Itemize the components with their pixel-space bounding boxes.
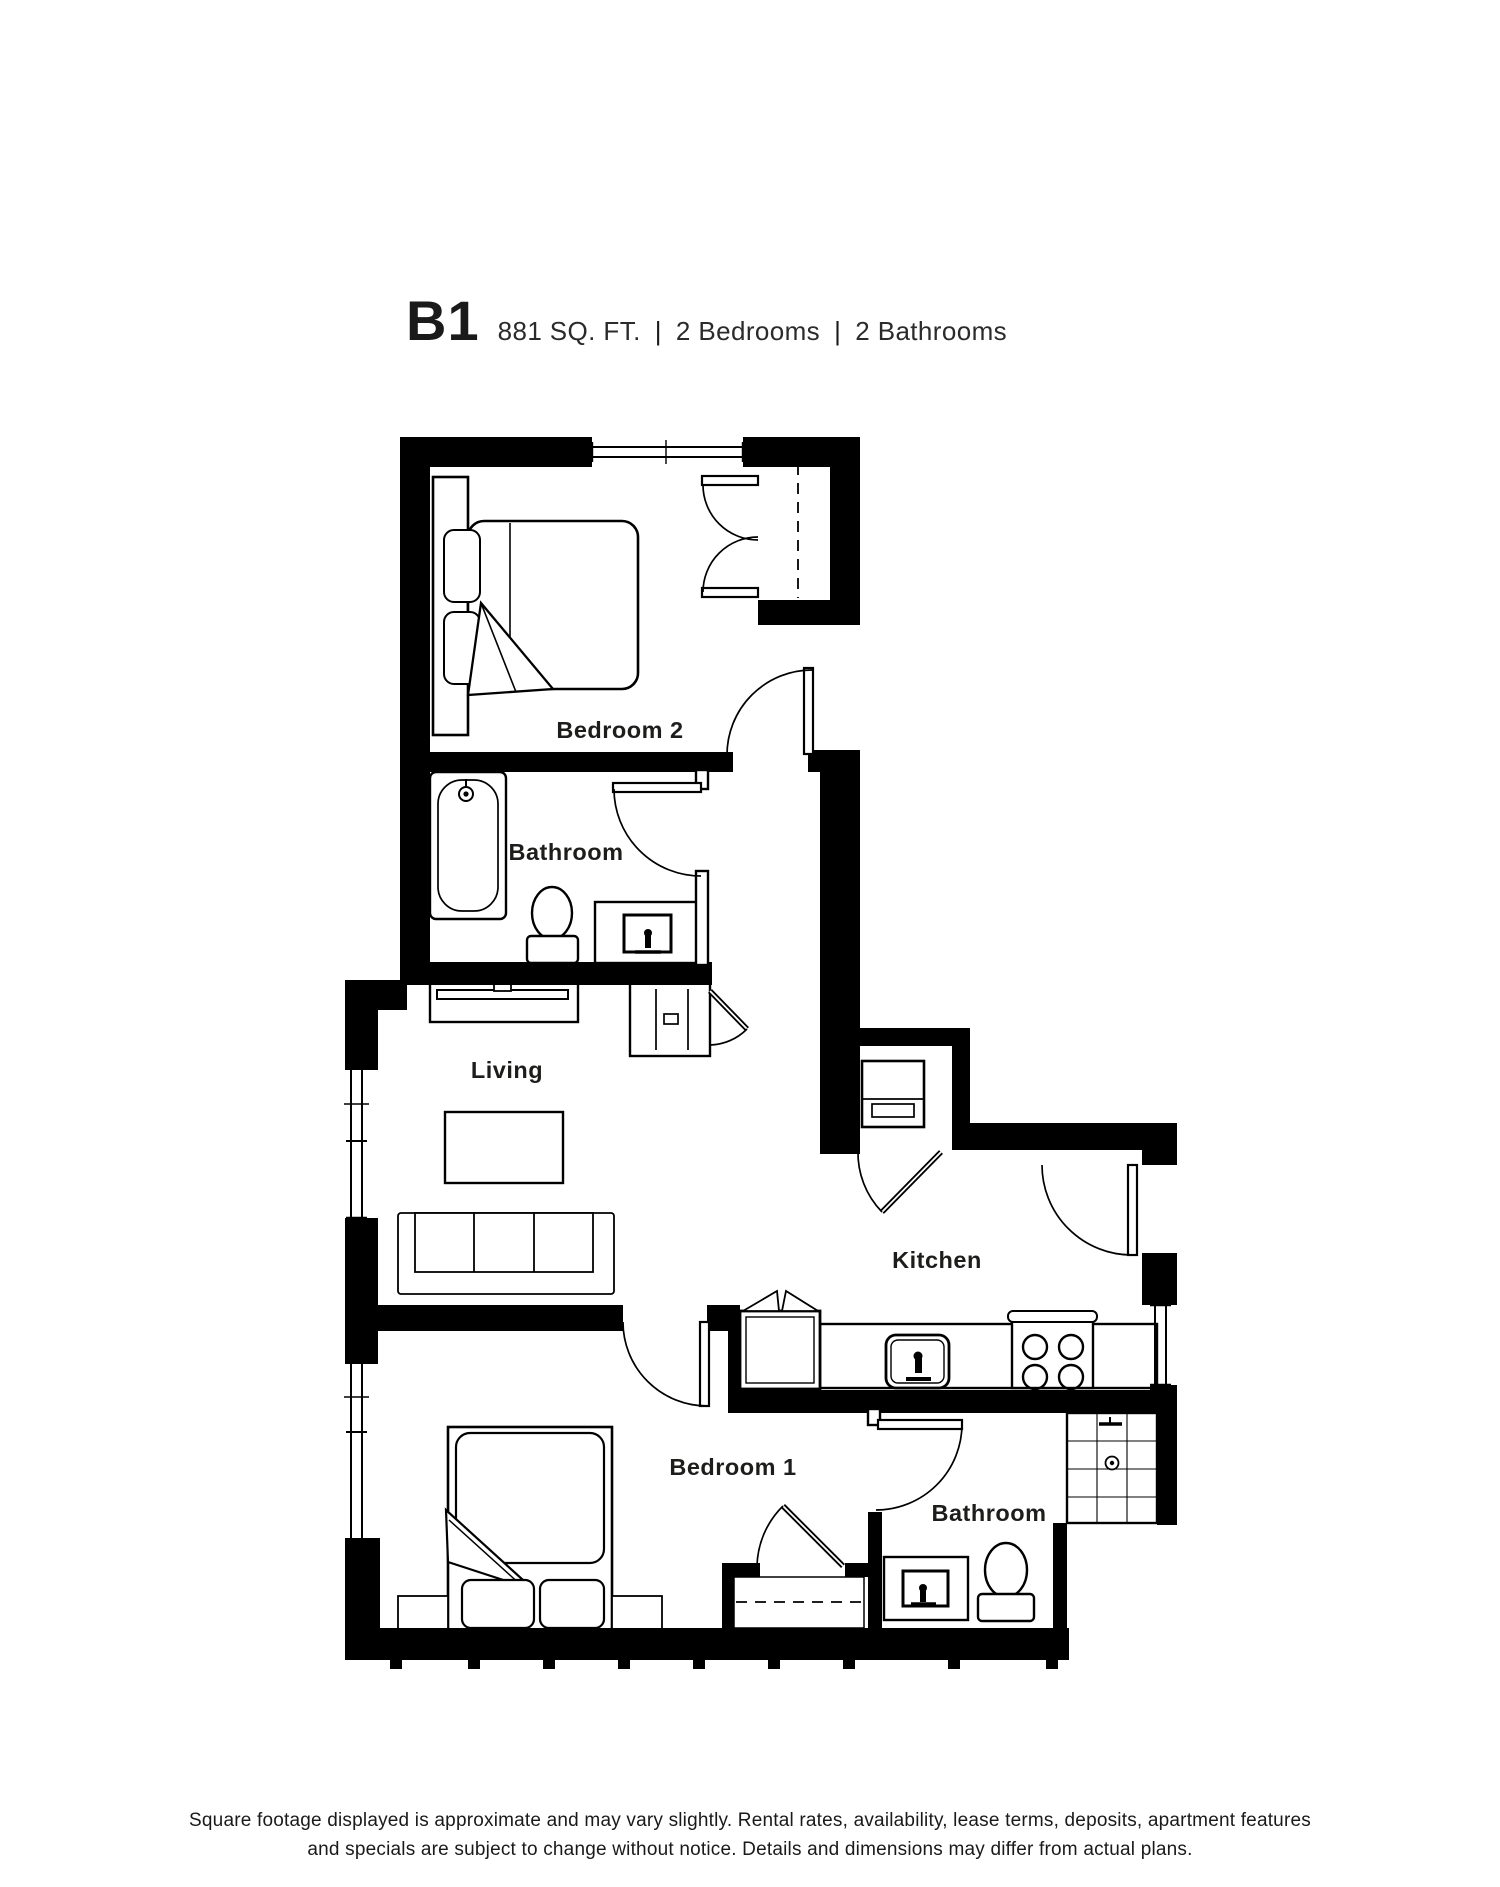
bed1-pillow-right (540, 1580, 604, 1628)
wall-entry-stub-bottom (1142, 1253, 1177, 1305)
bed2-headboard (433, 477, 468, 735)
wall-washer-top (820, 1028, 970, 1046)
foundation-tick-4 (618, 1660, 630, 1669)
door-bedroom2-arc (727, 670, 812, 755)
door-bath2-arc (614, 789, 701, 876)
coffee-table (445, 1112, 563, 1183)
foundation-tick-2 (468, 1660, 480, 1669)
label-living: Living (471, 1057, 543, 1083)
door-washer-arc (858, 1150, 882, 1212)
label-bathroom-2: Bathroom (509, 839, 624, 865)
sink1-faucet-stem (920, 1588, 926, 1602)
pantry-bifold-left (743, 1291, 779, 1311)
door-hvac-arc (710, 1029, 747, 1045)
disclaimer-line-2: and specials are subject to change witho… (0, 1835, 1500, 1864)
wall-bed1-door-stub (707, 1305, 730, 1331)
door-closet1-arc (757, 1506, 783, 1566)
tub-shower-valve-dot (463, 791, 468, 796)
door-washer-leaf-inner (882, 1152, 941, 1212)
foundation-tick-6 (768, 1660, 780, 1669)
wall-kitchen-right-low (1150, 1385, 1177, 1413)
door-closet1-leaf-inner (783, 1506, 843, 1566)
door-bath2-leaf (613, 783, 701, 792)
toilet1-bowl (985, 1543, 1027, 1597)
toilet2-tank (527, 936, 578, 963)
kitchen-faucet-stem (915, 1356, 922, 1373)
shower-drain-dot (1110, 1461, 1114, 1465)
door-closet2-leaf-bottom (702, 588, 758, 597)
thinwall-bath2-right-bottom (696, 871, 708, 965)
wall-bath1-left (868, 1512, 882, 1633)
wall-washer-right (952, 1028, 970, 1150)
wall-step (1053, 1523, 1067, 1633)
wall-bedroom2-bottom (400, 752, 733, 772)
sink2-faucet-stem (645, 933, 651, 948)
door-bed1-arc (623, 1322, 707, 1406)
door-closet2-arc-bottom (703, 537, 758, 592)
door-closet2-leaf-top (702, 476, 758, 485)
floorplan-svg: Bedroom 2BathroomLivingKitchenBedroom 1B… (0, 0, 1500, 1887)
label-bedroom-1: Bedroom 1 (669, 1454, 796, 1480)
floorplan-page: B1 881 SQ. FT.|2 Bedrooms|2 Bathrooms Be… (0, 0, 1500, 1887)
wall-bath2-bottom (400, 962, 712, 985)
wall-bottom (345, 1628, 1069, 1660)
door-bath1-leaf (878, 1420, 962, 1429)
foundation-tick-1 (390, 1660, 402, 1669)
foundation-tick-8 (948, 1660, 960, 1669)
foundation-tick-3 (543, 1660, 555, 1669)
wall-living-left-b (345, 1218, 378, 1364)
door-bath1-arc (876, 1424, 962, 1510)
door-hvac-leaf-inner (710, 991, 747, 1029)
pantry-bifold-right (782, 1291, 818, 1311)
wall-kitchen-top (952, 1123, 1177, 1150)
wall-hall-right (820, 750, 860, 1154)
wall-left-upper (400, 437, 430, 982)
sofa-cushions (415, 1213, 593, 1272)
foundation-tick-5 (693, 1660, 705, 1669)
wall-closet2-bottom (758, 600, 860, 625)
washer-drawer (872, 1104, 914, 1117)
door-bed1-leaf (700, 1322, 709, 1406)
pantry-cabinet (740, 1311, 820, 1389)
wall-under-pantry (728, 1390, 1160, 1413)
stove-back-panel (1008, 1311, 1097, 1322)
wall-bath1-right (1157, 1411, 1177, 1525)
bed2-pillow-top (444, 530, 480, 602)
foundation-tick-7 (843, 1660, 855, 1669)
wall-living-left-a (345, 980, 378, 1070)
wall-closet1-left (722, 1563, 734, 1640)
toilet2-bowl (532, 887, 572, 939)
disclaimer: Square footage displayed is approximate … (0, 1806, 1500, 1864)
door-entry-arc (1042, 1165, 1132, 1255)
wall-closet1-stub-right (845, 1563, 870, 1577)
wall-living-bed1 (378, 1305, 623, 1331)
nightstand-left (398, 1596, 448, 1632)
label-bathroom-1: Bathroom (932, 1500, 1047, 1526)
disclaimer-line-1: Square footage displayed is approximate … (0, 1806, 1500, 1835)
label-kitchen: Kitchen (892, 1247, 982, 1273)
door-closet2-arc-top (703, 485, 758, 540)
hvac-handle (664, 1014, 678, 1024)
wall-right-upper (830, 437, 860, 625)
door-bedroom2-leaf (804, 668, 813, 754)
door-entry-leaf (1128, 1165, 1137, 1255)
kitchen-counter (820, 1324, 1157, 1388)
label-bedroom-2: Bedroom 2 (556, 717, 683, 743)
nightstand-right (612, 1596, 662, 1632)
foundation-tick-9 (1046, 1660, 1058, 1669)
bed1-pillow-left (462, 1580, 534, 1628)
toilet1-tank (978, 1594, 1034, 1621)
